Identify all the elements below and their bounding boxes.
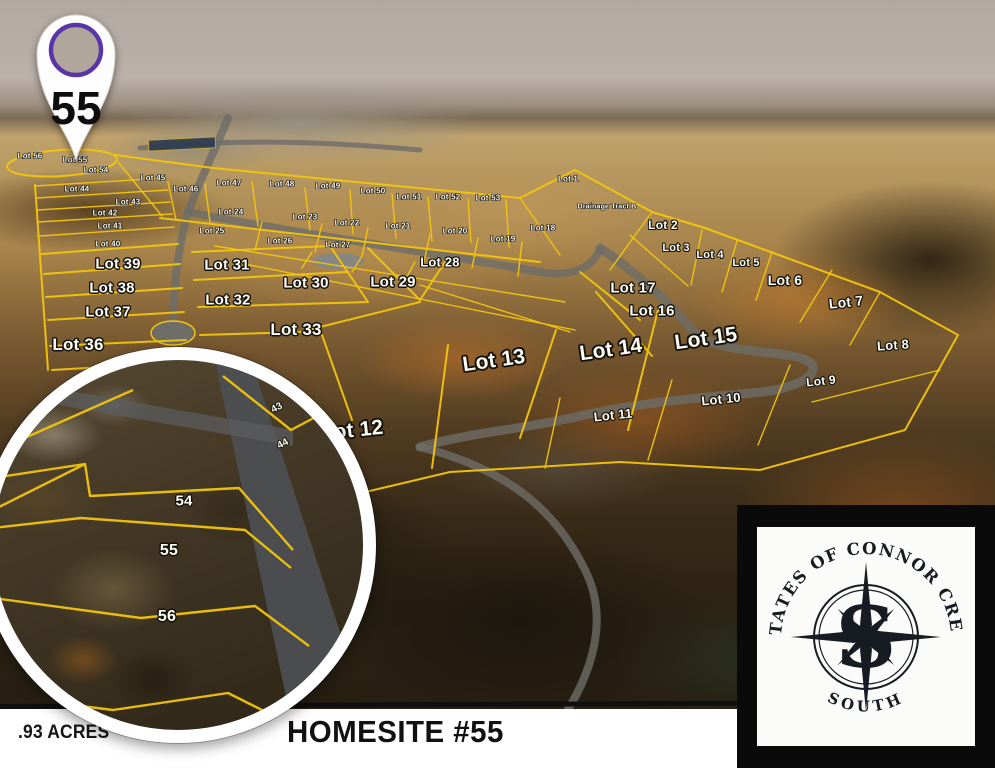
- lot-label: Lot 24: [219, 208, 244, 217]
- lot-label: Lot 42: [93, 209, 118, 218]
- lot-label: Lot 45: [141, 174, 166, 183]
- location-pin: 55: [26, 2, 126, 166]
- lot-label: Lot 11: [593, 406, 633, 425]
- lot-label: Lot 18: [531, 224, 556, 233]
- lot-label: Lot 53: [476, 194, 501, 203]
- lot-label: Lot 39: [95, 256, 140, 273]
- lot-label: Lot 23: [293, 213, 318, 222]
- lot-label: Lot 14: [578, 334, 644, 367]
- lot-label: Lot 7: [828, 292, 864, 312]
- lot-label: Lot 21: [386, 222, 411, 231]
- lot-label: Lot 5: [732, 257, 759, 269]
- lot-label: Lot 6: [768, 272, 802, 288]
- lot-label: Lot 36: [52, 335, 103, 355]
- lot-label: Lot 29: [370, 274, 415, 291]
- inset-zoom-circle: 5455564443: [0, 347, 376, 743]
- lot-label: Lot 19: [491, 235, 516, 244]
- lot-label: Lot 26: [268, 237, 293, 246]
- lot-label: Lot 3: [662, 242, 689, 254]
- lot-label: Lot 20: [443, 227, 468, 236]
- logo-inner: S ESTATES OF CONNOR CREEK SOUTH: [757, 527, 975, 746]
- lot-label: Lot 37: [85, 304, 130, 321]
- pin-ring-icon: [51, 25, 101, 75]
- lot-label: Lot 46: [174, 185, 199, 194]
- lot-label: Lot 15: [673, 323, 739, 356]
- lot-label: Lot 27: [326, 241, 351, 250]
- lot-label: Lot 44: [65, 185, 90, 194]
- inset-lot-label: 56: [158, 608, 176, 626]
- lot-label: Lot 25: [200, 227, 225, 236]
- lot-label: Lot 17: [610, 280, 655, 297]
- lot-label: Lot 52: [436, 193, 461, 202]
- lot-label: Lot 43: [116, 198, 141, 207]
- inset-boundary-overlay: [0, 360, 363, 730]
- lot-label: Lot 28: [420, 255, 459, 270]
- logo-monogram: S: [836, 588, 897, 687]
- lot-label: Lot 13: [461, 345, 527, 378]
- lot-label: Lot 31: [204, 257, 249, 274]
- lot-label: Lot 50: [361, 187, 386, 196]
- compass-logo-icon: S ESTATES OF CONNOR CREEK SOUTH: [757, 527, 975, 746]
- lot-label: Lot 22: [335, 219, 360, 228]
- lot-label: Lot 51: [397, 193, 422, 202]
- lot-label: Lot 49: [316, 182, 341, 191]
- lot-label: Drainage Tract B: [578, 204, 637, 211]
- lot-label: Lot 8: [876, 336, 909, 353]
- lot-label: Lot 40: [96, 240, 121, 249]
- lot-label: Lot 54: [84, 166, 109, 175]
- lot-label: Lot 41: [98, 222, 123, 231]
- listing-graphic: Lot 56Lot 55Lot 54Lot 45Lot 46Lot 47Lot …: [0, 0, 995, 768]
- lot-label: Lot 9: [806, 372, 837, 389]
- lot-label: Lot 10: [701, 389, 742, 408]
- lot-label: Lot 30: [283, 275, 328, 292]
- lot-label: Lot 16: [629, 303, 674, 320]
- lot-label: Lot 38: [89, 280, 134, 297]
- pin-number: 55: [50, 82, 101, 134]
- inset-lot-label: 54: [175, 493, 192, 510]
- inset-lot-label: 55: [160, 542, 178, 560]
- lot-label: Lot 2: [648, 218, 678, 232]
- lot-label: Lot 32: [205, 292, 250, 309]
- logo-box: S ESTATES OF CONNOR CREEK SOUTH: [737, 505, 995, 768]
- lot-label: Lot 33: [270, 320, 321, 340]
- lot-label: Lot 47: [217, 179, 242, 188]
- lot-label: Lot 48: [270, 180, 295, 189]
- lot-label: Lot 4: [696, 249, 723, 261]
- lot-label: Lot 1: [558, 175, 578, 184]
